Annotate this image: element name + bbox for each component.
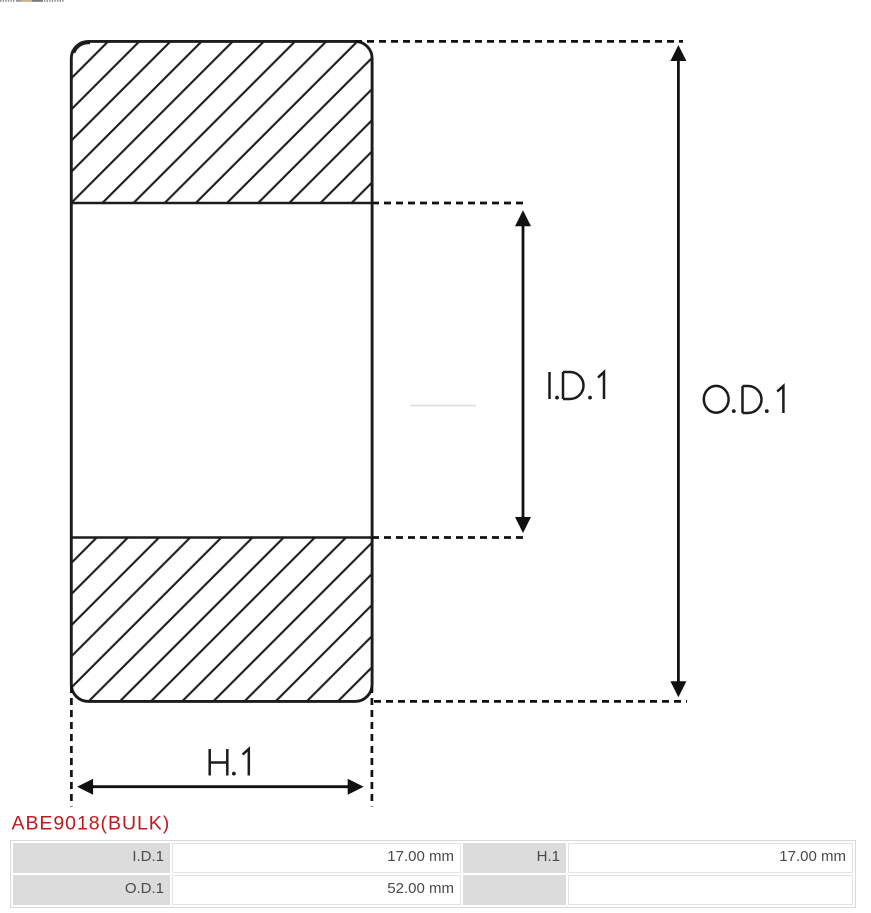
svg-text:ABE9018(BULK): ABE9018(BULK) — [12, 813, 171, 835]
